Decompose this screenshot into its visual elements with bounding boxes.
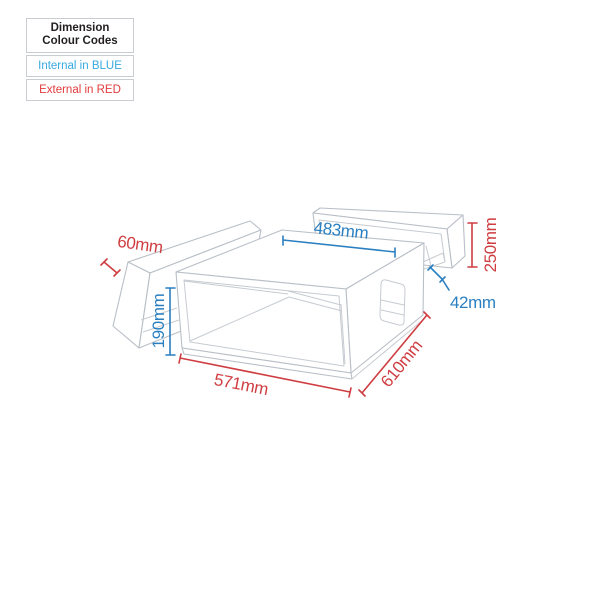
technical-drawing-page: Dimension Colour Codes Internal in BLUE … (0, 0, 600, 600)
dim-label-internal-rear-depth: 42mm (450, 293, 496, 312)
case-dimension-drawing: 483mm 190mm 42mm 60mm 250mm 571mm (0, 0, 600, 600)
dim-label-external-front-depth: 60mm (116, 232, 164, 257)
case-front-face (176, 272, 351, 373)
dim-external-height: 250mm (468, 217, 500, 272)
dim-label-external-height: 250mm (481, 217, 500, 272)
dim-label-internal-height: 190mm (149, 293, 168, 348)
